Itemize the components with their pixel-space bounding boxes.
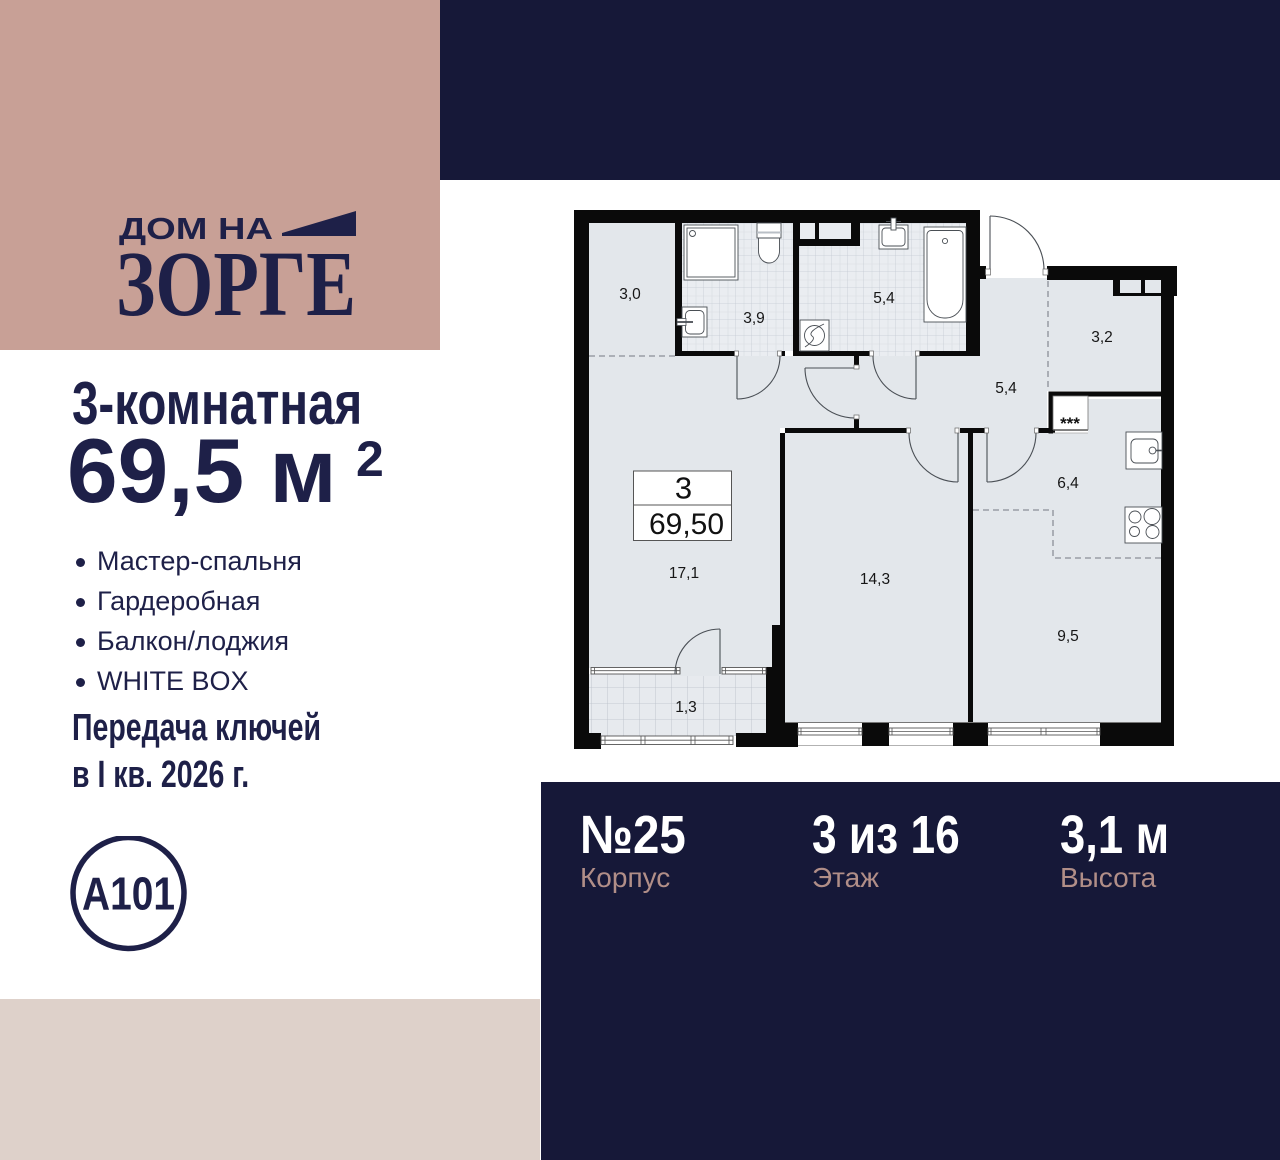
svg-text:***: *** [1060, 414, 1080, 433]
svg-text:3,2: 3,2 [1091, 329, 1113, 346]
svg-text:17,1: 17,1 [669, 565, 699, 582]
svg-text:69,50: 69,50 [649, 508, 724, 541]
svg-text:14,3: 14,3 [860, 571, 890, 588]
svg-text:3,0: 3,0 [619, 286, 641, 303]
svg-text:3,9: 3,9 [743, 310, 765, 327]
svg-text:9,5: 9,5 [1057, 628, 1079, 645]
svg-text:5,4: 5,4 [873, 290, 895, 307]
svg-text:3: 3 [675, 471, 692, 506]
svg-text:5,4: 5,4 [995, 380, 1017, 397]
svg-text:ЗОРГЕ: ЗОРГЕ [116, 233, 356, 325]
svg-text:1,3: 1,3 [675, 699, 697, 716]
svg-text:A101: A101 [82, 868, 175, 920]
svg-text:6,4: 6,4 [1057, 475, 1079, 492]
